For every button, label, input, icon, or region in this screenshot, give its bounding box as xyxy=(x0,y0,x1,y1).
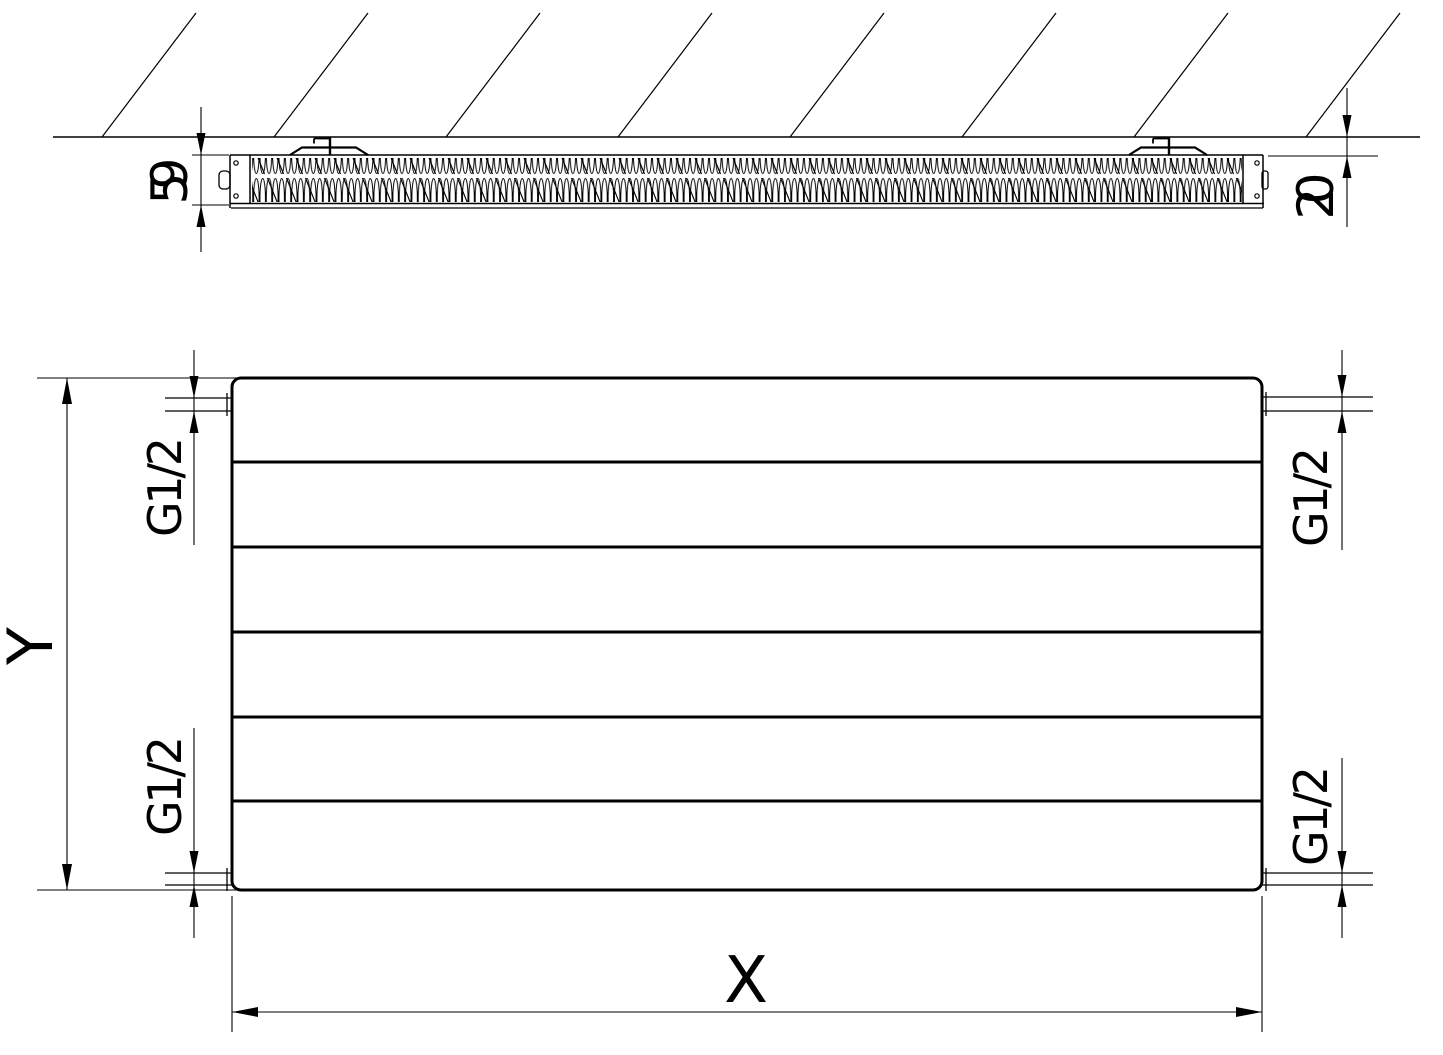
arrowhead xyxy=(190,376,199,398)
connection-stub-top-right xyxy=(1261,392,1373,416)
width-dim-label: X xyxy=(724,944,768,1018)
cap-screw xyxy=(1255,194,1259,198)
arrowhead xyxy=(1338,851,1347,873)
dim-wall-gap-20: 20 xyxy=(1268,88,1378,227)
arrowhead xyxy=(1338,375,1347,397)
dim-connection-bottom-left: G1/2 xyxy=(138,728,194,938)
connection-stub-top-left xyxy=(165,393,233,416)
arrowhead xyxy=(1338,411,1347,433)
wall-gap-dim-label: 20 xyxy=(1287,173,1345,220)
dim-width-X: X xyxy=(232,896,1262,1032)
connection-label-top-right: G1/2 xyxy=(1284,447,1338,547)
mounting-bracket-right xyxy=(1129,137,1207,156)
arrowhead xyxy=(1343,115,1352,137)
arrowhead xyxy=(190,411,199,433)
arrowhead xyxy=(62,378,72,404)
dim-depth-59: 59 xyxy=(141,107,229,252)
connection-stub-bottom-right xyxy=(1261,868,1373,891)
hatch-line xyxy=(446,13,540,137)
technical-drawing-svg: 59 20 Y X G1/2 G1/2 xyxy=(0,0,1443,1055)
connection-stub-bottom-left xyxy=(165,868,233,891)
arrowhead xyxy=(1338,885,1347,907)
arrowhead xyxy=(232,1007,258,1017)
connection-label-bottom-right: G1/2 xyxy=(1284,766,1338,866)
dim-height-Y: Y xyxy=(0,378,252,890)
radiator-side-view xyxy=(53,13,1420,208)
arrowhead xyxy=(62,864,72,890)
dim-connection-bottom-right: G1/2 xyxy=(1284,758,1342,938)
mounting-bracket-left xyxy=(290,137,368,156)
end-cap-left xyxy=(219,155,250,208)
convector-fin-folds xyxy=(252,158,1242,202)
hatch-line xyxy=(274,13,368,137)
hatch-line xyxy=(1306,13,1400,137)
arrowhead xyxy=(197,205,206,227)
connection-label-bottom-left: G1/2 xyxy=(138,736,192,836)
cap-screw xyxy=(1255,161,1259,165)
drawing-canvas: 59 20 Y X G1/2 G1/2 xyxy=(0,0,1443,1055)
arrowhead xyxy=(190,851,199,873)
hatch-line xyxy=(102,13,196,137)
radiator-front-view xyxy=(165,378,1373,891)
hatch-line xyxy=(1134,13,1228,137)
height-dim-label: Y xyxy=(0,627,67,666)
hatch-line xyxy=(962,13,1056,137)
wall-hatch xyxy=(102,13,1400,137)
end-cap-right xyxy=(1243,155,1268,208)
front-panel-outline xyxy=(232,378,1262,890)
hatch-line xyxy=(790,13,884,137)
depth-dim-label: 59 xyxy=(141,158,199,205)
side-plug xyxy=(219,171,230,189)
hatch-line xyxy=(618,13,712,137)
arrowhead xyxy=(197,133,206,155)
cap-screw xyxy=(234,161,238,165)
arrowhead xyxy=(1343,156,1352,178)
connection-label-top-left: G1/2 xyxy=(138,437,192,537)
cap-screw xyxy=(234,194,238,198)
arrowhead xyxy=(190,885,199,907)
arrowhead xyxy=(1236,1007,1262,1017)
dim-connection-top-right: G1/2 xyxy=(1284,350,1342,550)
dim-connection-top-left: G1/2 xyxy=(138,350,194,545)
